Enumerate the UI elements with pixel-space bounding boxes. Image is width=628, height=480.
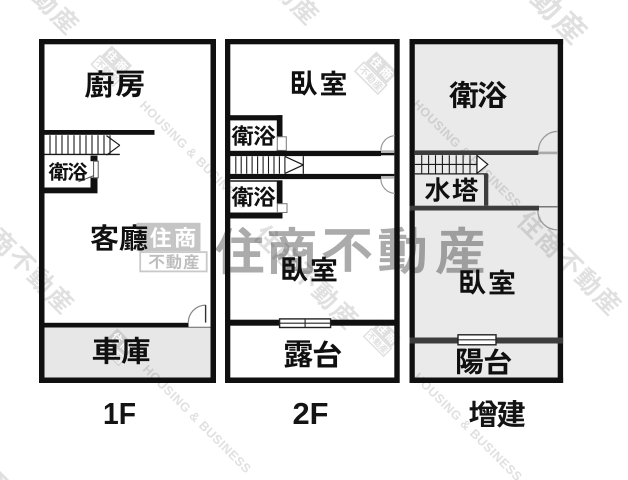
svg-text:1F: 1F [103, 396, 136, 431]
svg-text:2F: 2F [293, 396, 329, 431]
